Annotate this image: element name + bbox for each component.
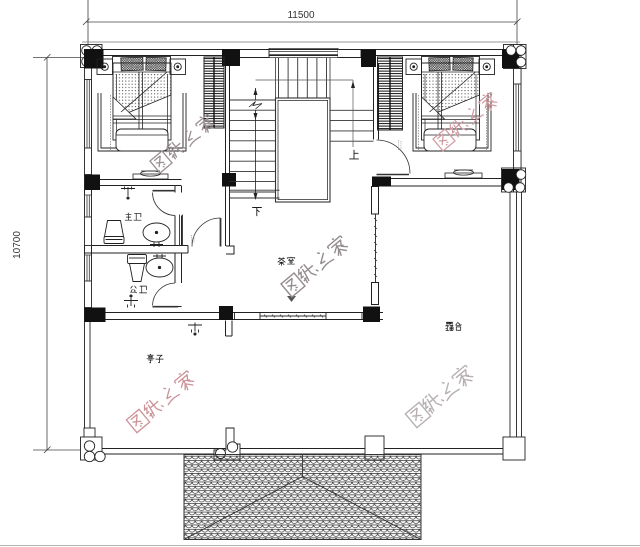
svg-text:11500: 11500 xyxy=(287,10,315,21)
svg-text:10700: 10700 xyxy=(12,231,23,259)
